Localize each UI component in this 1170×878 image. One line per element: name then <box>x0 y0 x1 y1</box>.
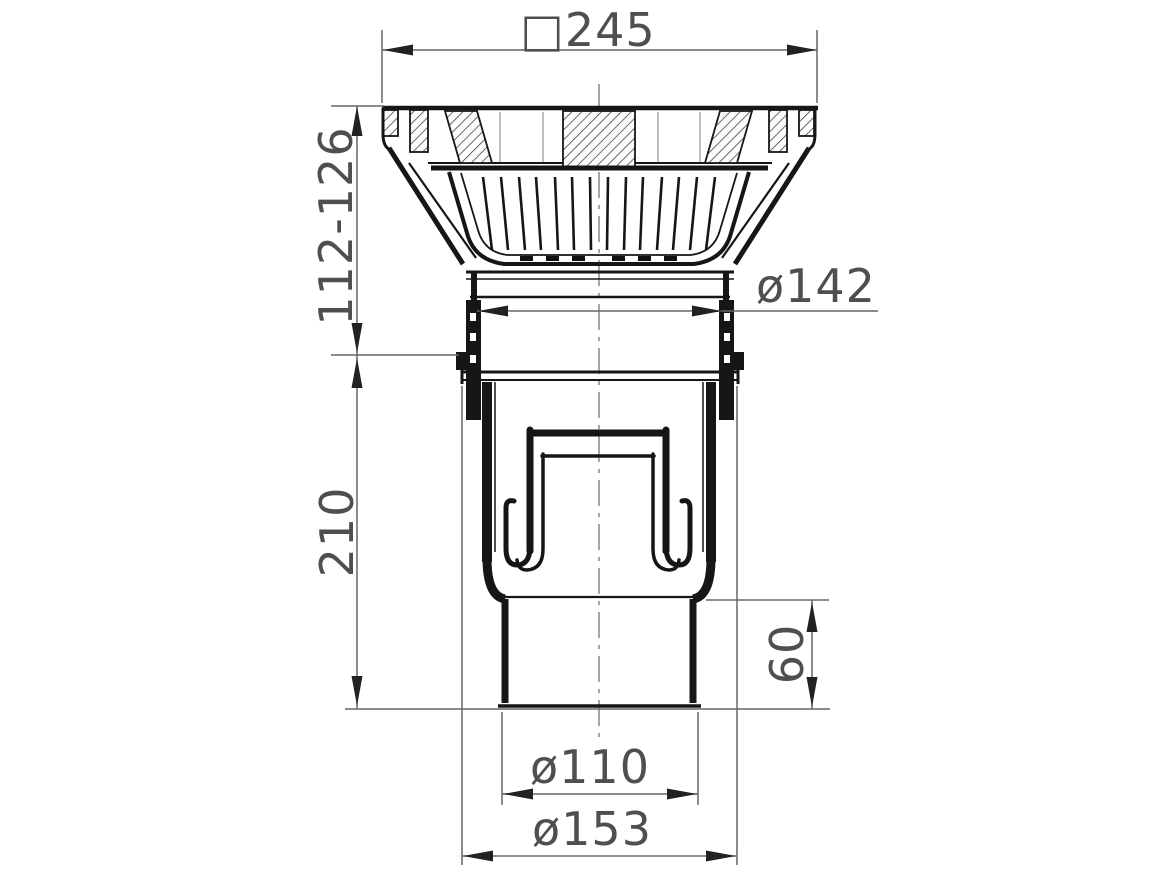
grate-frame <box>382 108 818 167</box>
dimension-neck-diameter: ø142 <box>477 259 878 317</box>
dimension-label-outlet-pipe-diameter: ø110 <box>530 740 650 794</box>
dimension-body-height: 210 <box>310 355 830 709</box>
dimension-label-flange-diameter: ø153 <box>532 802 652 856</box>
technical-drawing: □245 112-126 ø142 210 60 <box>0 0 1170 878</box>
grate-bars <box>383 110 814 167</box>
clamp-ring-left <box>456 300 481 420</box>
neck <box>466 272 734 370</box>
dimension-label-adjustable-height: 112-126 <box>309 126 363 325</box>
union-flange <box>462 369 738 384</box>
dimension-label-top-width: □245 <box>520 3 655 57</box>
dimension-outlet-spigot-length: 60 <box>706 600 829 709</box>
dimension-label-body-height: 210 <box>310 487 364 578</box>
dimension-label-outlet-spigot-length: 60 <box>760 624 814 685</box>
clamp-ring-right <box>719 300 744 420</box>
dimension-outlet-pipe-diameter: ø110 <box>502 712 698 805</box>
water-trap <box>506 430 690 570</box>
dimension-label-neck-diameter: ø142 <box>756 259 876 313</box>
drawing-page: □245 112-126 ø142 210 60 <box>0 0 1170 878</box>
